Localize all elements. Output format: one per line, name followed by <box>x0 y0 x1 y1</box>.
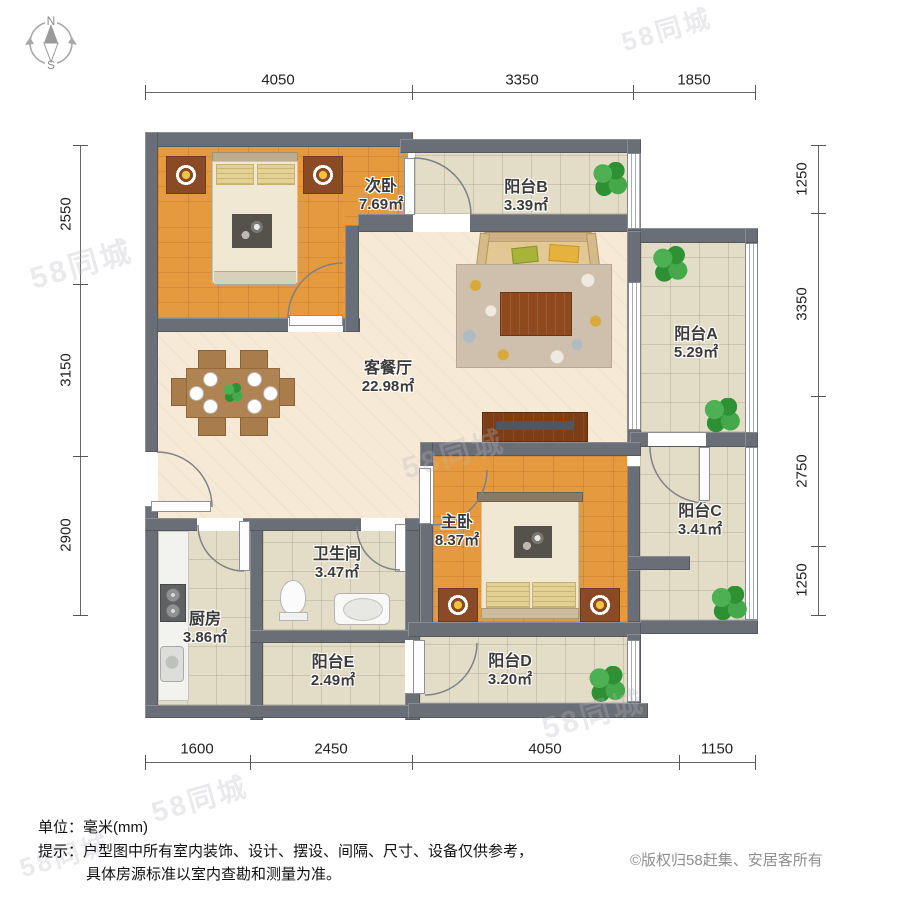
dim-value: 3350 <box>794 287 811 320</box>
window <box>745 243 758 433</box>
room-label-bathroom: 卫生间3.47㎡ <box>313 546 361 582</box>
watermark: 58同城 <box>617 0 717 59</box>
nightstand-lamp <box>303 156 343 194</box>
room-label-living-dining: 客餐厅22.98㎡ <box>362 360 415 396</box>
wall-segment <box>408 622 641 637</box>
sofa-pillow-yellow <box>548 244 579 263</box>
window <box>628 282 641 430</box>
dim-value: 1850 <box>677 72 710 89</box>
dim-tick <box>755 755 756 770</box>
dining-chair <box>240 350 268 370</box>
dim-tick <box>679 755 680 770</box>
dim-tick <box>73 456 88 457</box>
master-bed-canopy <box>477 492 583 502</box>
wall-segment <box>420 442 433 468</box>
door-opening <box>648 433 706 446</box>
door-leaf <box>419 468 431 524</box>
plant <box>703 398 741 434</box>
plant <box>592 162 628 198</box>
window <box>627 153 641 229</box>
sofa-pillow-green <box>511 246 539 265</box>
compass-icon: N S <box>20 12 82 74</box>
wall-segment <box>627 570 640 622</box>
wall-segment <box>640 620 758 634</box>
room-label-balcony-c: 阳台C3.41㎡ <box>678 503 722 539</box>
dining-chair <box>278 378 295 406</box>
wall-segment <box>420 522 433 637</box>
room-label-balcony-d: 阳台D3.20㎡ <box>488 653 532 689</box>
washbasin-bowl <box>343 598 383 621</box>
dim-tick <box>73 145 88 146</box>
dim-value: 4050 <box>528 741 561 758</box>
wall-segment <box>408 703 648 718</box>
wall-segment <box>745 228 758 243</box>
disclaimer-line2: 具体房源标准以室内查勘和测量为准。 <box>86 863 341 884</box>
door-opening <box>413 214 470 232</box>
floorplan-canvas: N S <box>0 0 900 900</box>
wall-segment <box>145 506 158 718</box>
dimension-line-top <box>145 92 755 93</box>
bed-foot-bench <box>214 271 296 285</box>
copyright-note: ©版权归58赶集、安居客所有 <box>630 849 823 870</box>
dim-value: 2900 <box>58 518 75 551</box>
dim-tick <box>145 85 146 100</box>
dim-value: 3150 <box>58 353 75 386</box>
room-label-master-bedroom: 主卧8.37㎡ <box>435 514 479 550</box>
coffee-table <box>500 292 572 336</box>
watermark: 58同城 <box>146 765 252 831</box>
dim-value: 1250 <box>794 162 811 195</box>
dim-tick <box>73 615 88 616</box>
wall-segment <box>630 228 758 243</box>
dim-tick <box>811 145 826 146</box>
dim-value: 1250 <box>794 563 811 596</box>
disclaimer-line1: 提示：户型图中所有室内装饰、设计、摆设、间隔、尺寸、设备仅供参考， <box>38 840 533 861</box>
window <box>627 640 640 702</box>
dimension-line-left <box>80 145 81 615</box>
plate <box>247 372 262 387</box>
wall-segment <box>400 139 641 153</box>
door-leaf <box>404 158 415 215</box>
nightstand-lamp <box>580 588 620 622</box>
dim-tick <box>811 546 826 547</box>
dim-tick <box>811 213 826 214</box>
plate <box>247 399 262 414</box>
toilet-icon <box>280 580 306 614</box>
dim-tick <box>145 755 146 770</box>
dim-value: 2450 <box>314 741 347 758</box>
wall-segment <box>358 214 641 232</box>
dining-chair <box>198 350 226 370</box>
sink-icon <box>160 646 184 682</box>
dim-tick <box>811 615 826 616</box>
wall-segment <box>145 132 158 452</box>
toilet-tank <box>279 612 308 621</box>
bed-pillow <box>216 164 254 185</box>
dim-tick <box>811 396 826 397</box>
wall-segment <box>345 225 359 332</box>
dim-tick <box>633 85 634 100</box>
dimension-line-bottom <box>145 762 755 763</box>
wall-segment <box>627 466 640 566</box>
bed-pillow <box>257 164 295 185</box>
wall-segment <box>627 556 690 570</box>
unit-note: 单位：毫米(mm) <box>38 816 148 837</box>
dim-value: 2550 <box>58 197 75 230</box>
room-label-kitchen: 厨房3.86㎡ <box>183 611 227 647</box>
wall-segment <box>420 442 641 456</box>
dimension-line-right <box>818 145 819 615</box>
plate <box>203 399 218 414</box>
plate <box>189 386 204 401</box>
wall-segment <box>145 705 420 718</box>
dim-tick <box>250 755 251 770</box>
wall-segment <box>145 132 413 147</box>
dim-tick <box>412 85 413 100</box>
wall-segment <box>745 432 758 447</box>
dim-value: 3350 <box>505 72 538 89</box>
plant <box>588 666 626 704</box>
room-label-balcony-b: 阳台B3.39㎡ <box>504 179 548 215</box>
entrance-opening <box>145 452 158 506</box>
room-label-second-bedroom: 次卧7.69㎡ <box>359 178 403 214</box>
door-opening <box>197 518 243 531</box>
bed-pillow <box>532 582 576 608</box>
door-leaf <box>699 447 710 501</box>
nightstand-lamp <box>438 588 478 622</box>
dim-tick <box>755 85 756 100</box>
bed-pillow <box>486 582 530 608</box>
compass-north: N <box>47 14 56 28</box>
compass-south: S <box>47 58 55 72</box>
wall-segment <box>250 518 263 720</box>
dim-value: 2750 <box>794 454 811 487</box>
dim-value: 1150 <box>701 741 733 758</box>
dim-tick <box>73 284 88 285</box>
room-label-balcony-e: 阳台E2.49㎡ <box>311 654 355 690</box>
table-plant <box>223 383 243 403</box>
plate <box>203 372 218 387</box>
nightstand-lamp <box>166 156 206 194</box>
door-leaf <box>395 524 406 572</box>
door-leaf <box>289 315 343 326</box>
bed-throw-blanket <box>514 526 552 558</box>
plate <box>263 386 278 401</box>
master-headboard <box>481 608 579 619</box>
dim-tick <box>412 755 413 770</box>
plant <box>652 246 688 284</box>
plant <box>710 586 748 622</box>
entrance-door-leaf <box>151 501 211 512</box>
tv-icon <box>496 421 574 430</box>
dining-chair <box>240 416 268 436</box>
door-leaf <box>239 521 250 571</box>
dim-value: 1600 <box>180 741 213 758</box>
dining-chair <box>198 416 226 436</box>
wall-segment <box>250 630 420 643</box>
door-leaf <box>413 640 425 694</box>
dim-value: 4050 <box>261 72 294 89</box>
bed-throw-blanket <box>232 214 272 248</box>
room-label-balcony-a: 阳台A5.29㎡ <box>674 326 718 362</box>
